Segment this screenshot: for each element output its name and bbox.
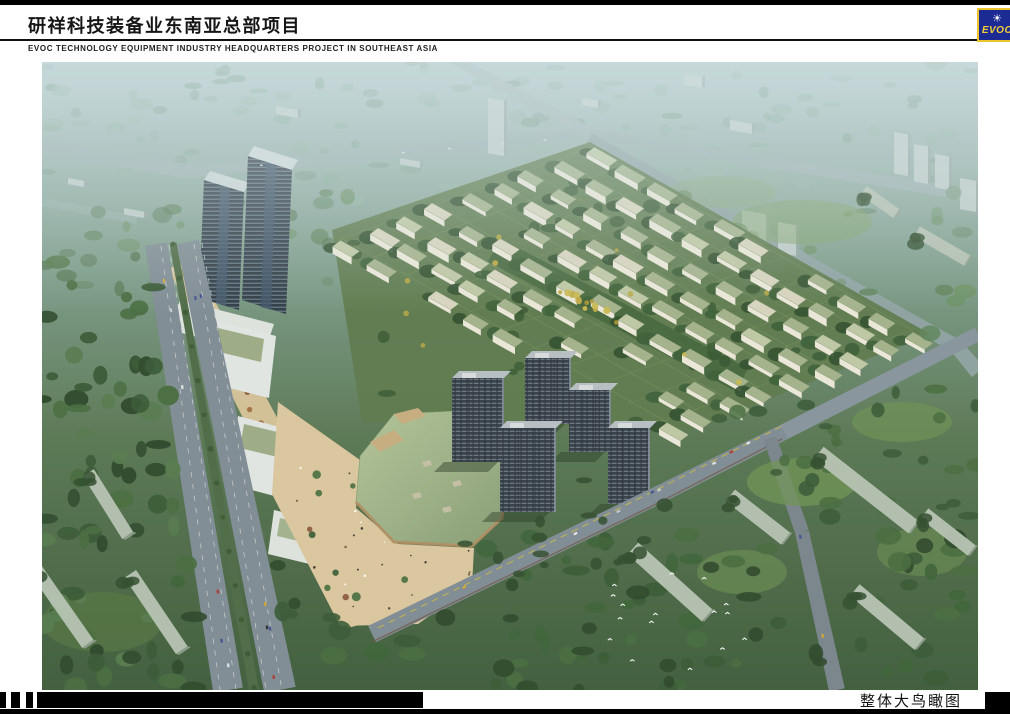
haze-overlay (42, 62, 978, 690)
evoc-logo: ☀ EVOC (977, 8, 1010, 42)
barcode-stripe (26, 692, 33, 708)
drawing-caption: 整体大鸟瞰图 (860, 690, 962, 711)
page-subtitle: EVOC TECHNOLOGY EQUIPMENT INDUSTRY HEADQ… (28, 44, 438, 53)
title-divider (0, 39, 1010, 41)
aerial-rendering-canvas (42, 62, 978, 690)
barcode-stripe (11, 692, 20, 708)
page-title: 研祥科技装备业东南亚总部项目 (28, 12, 301, 38)
bottom-border-bar (0, 709, 1010, 714)
footer-title-bar (37, 692, 423, 708)
aerial-rendering (42, 62, 978, 690)
presentation-sheet: 研祥科技装备业东南亚总部项目 EVOC TECHNOLOGY EQUIPMENT… (0, 0, 1010, 714)
sun-burst-icon: ☀ (992, 14, 1002, 25)
top-border-bar (0, 0, 1010, 5)
barcode-stripe (0, 692, 6, 708)
logo-text: EVOC (982, 25, 1010, 36)
